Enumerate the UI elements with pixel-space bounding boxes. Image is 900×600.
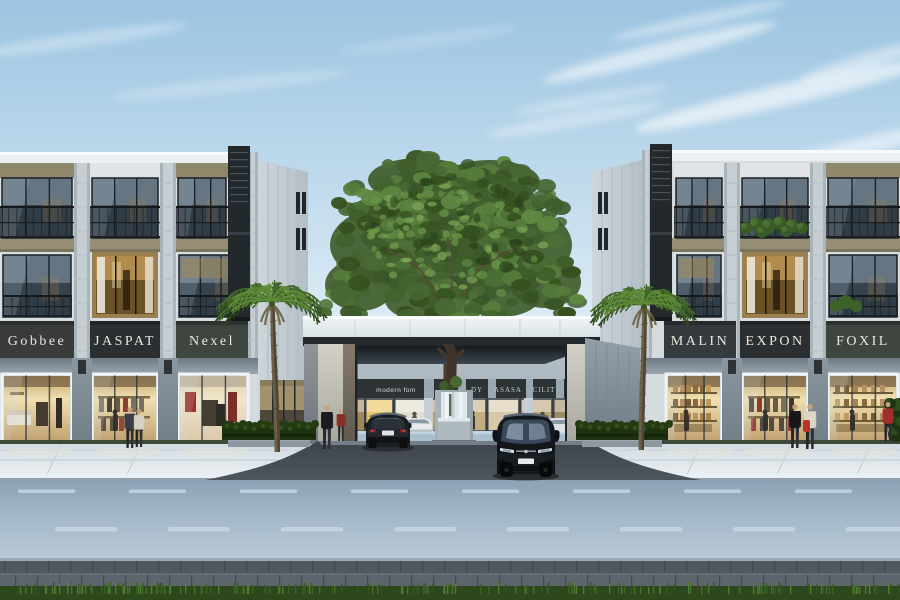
svg-text:FOXIL: FOXIL bbox=[836, 334, 890, 349]
svg-text:Nexel: Nexel bbox=[189, 334, 235, 349]
svg-text:MALIN: MALIN bbox=[671, 334, 729, 349]
svg-text:JASPAT: JASPAT bbox=[94, 334, 156, 349]
svg-text:ASASA: ASASA bbox=[494, 386, 522, 394]
svg-text:CILIT: CILIT bbox=[533, 386, 556, 394]
svg-text:Gobbee: Gobbee bbox=[8, 334, 67, 349]
svg-text:EXPON: EXPON bbox=[745, 334, 804, 349]
svg-text:modern fom: modern fom bbox=[376, 387, 416, 394]
